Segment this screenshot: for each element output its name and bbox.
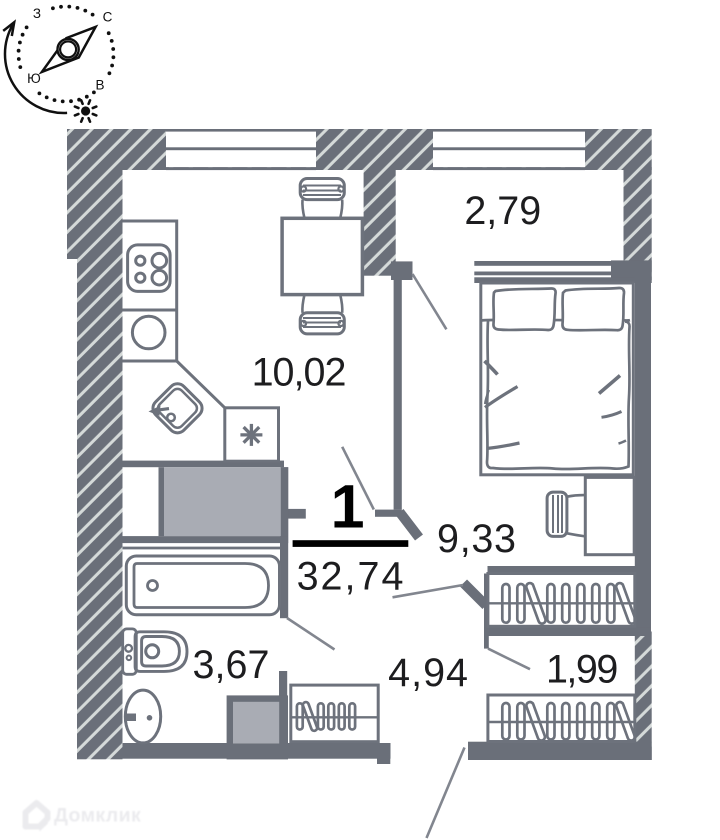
svg-text:1: 1 [331,473,365,541]
svg-text:В: В [95,78,104,93]
svg-text:С: С [103,10,113,25]
svg-text:Домклик: Домклик [54,805,141,827]
svg-text:2,79: 2,79 [464,189,541,233]
svg-text:1,99: 1,99 [546,647,617,691]
svg-text:10,02: 10,02 [252,351,346,395]
svg-text:Ю: Ю [27,71,41,86]
svg-text:32,74: 32,74 [297,555,406,599]
svg-text:4,94: 4,94 [388,651,469,695]
svg-text:З: З [33,6,41,21]
svg-text:9,33: 9,33 [437,517,517,561]
svg-text:3,67: 3,67 [193,643,270,687]
